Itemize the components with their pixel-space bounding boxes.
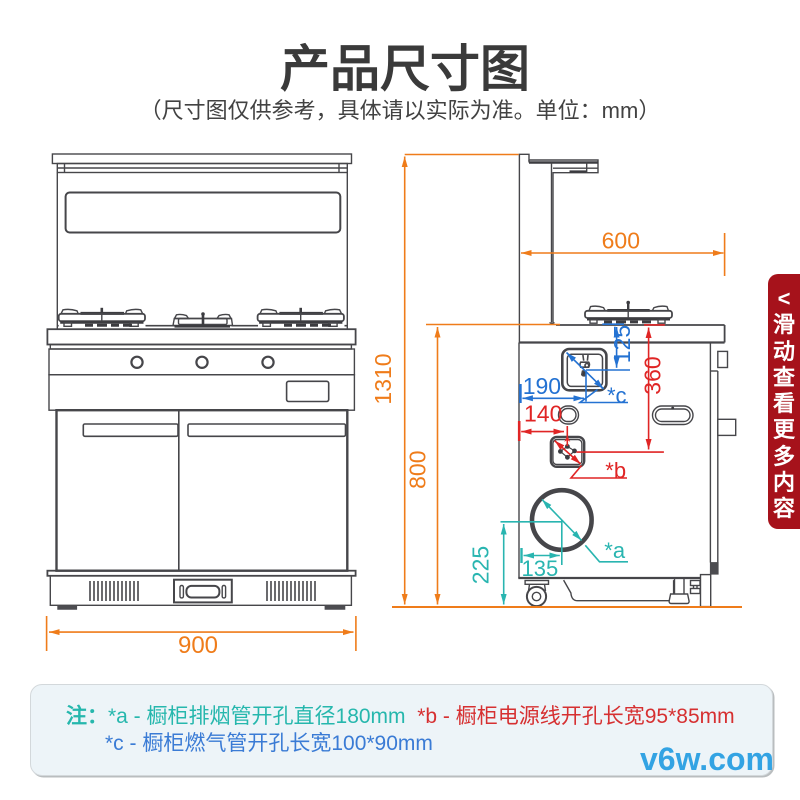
svg-text:900: 900: [178, 632, 218, 659]
svg-text:135: 135: [522, 556, 559, 581]
svg-text:225: 225: [468, 546, 494, 584]
svg-text:140: 140: [524, 400, 562, 426]
svg-text:*a: *a: [604, 538, 626, 563]
svg-text:360: 360: [640, 356, 666, 394]
svg-text:*c: *c: [607, 383, 627, 408]
svg-text:1310: 1310: [370, 353, 396, 404]
svg-text:190: 190: [523, 373, 561, 399]
svg-text:800: 800: [405, 451, 431, 489]
svg-text:600: 600: [602, 228, 640, 254]
svg-text:125: 125: [609, 325, 635, 363]
svg-text:*b: *b: [605, 458, 626, 483]
